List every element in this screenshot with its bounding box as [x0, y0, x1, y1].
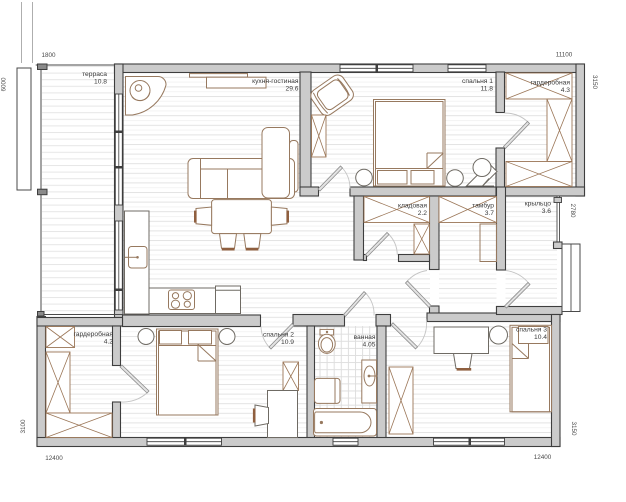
svg-text:3.7: 3.7	[485, 210, 495, 217]
svg-text:4.2: 4.2	[104, 339, 114, 346]
svg-text:кухня-гостиная: кухня-гостиная	[252, 78, 299, 85]
svg-text:спальня 2: спальня 2	[263, 332, 294, 339]
svg-text:ванная: ванная	[354, 334, 376, 341]
svg-text:3100: 3100	[20, 419, 27, 434]
svg-text:11100: 11100	[556, 52, 573, 59]
svg-text:1800: 1800	[41, 52, 56, 59]
svg-text:10.8: 10.8	[94, 79, 107, 86]
svg-text:2780: 2780	[569, 203, 576, 218]
svg-text:спальня 1: спальня 1	[462, 78, 493, 85]
svg-text:4.05: 4.05	[362, 342, 375, 349]
svg-text:3.6: 3.6	[542, 208, 552, 215]
svg-text:10.9: 10.9	[281, 339, 294, 346]
svg-text:гардеробная: гардеробная	[73, 330, 113, 338]
svg-text:терраса: терраса	[82, 71, 107, 78]
svg-text:4.3: 4.3	[561, 87, 571, 94]
svg-text:тамбур: тамбур	[472, 202, 494, 210]
svg-text:29.6: 29.6	[285, 86, 298, 93]
svg-text:3150: 3150	[591, 75, 598, 90]
svg-text:12400: 12400	[45, 455, 63, 462]
svg-text:кладовая: кладовая	[398, 203, 427, 210]
svg-text:12400: 12400	[534, 454, 552, 461]
svg-text:спальня 3: спальня 3	[516, 327, 547, 334]
svg-text:10.4: 10.4	[534, 334, 547, 341]
svg-text:2.2: 2.2	[418, 210, 428, 217]
svg-text:11.8: 11.8	[480, 86, 493, 93]
svg-text:3150: 3150	[570, 421, 577, 436]
svg-text:гардеробная: гардеробная	[530, 79, 570, 87]
svg-text:6000: 6000	[1, 77, 8, 92]
svg-text:крыльцо: крыльцо	[525, 201, 552, 208]
